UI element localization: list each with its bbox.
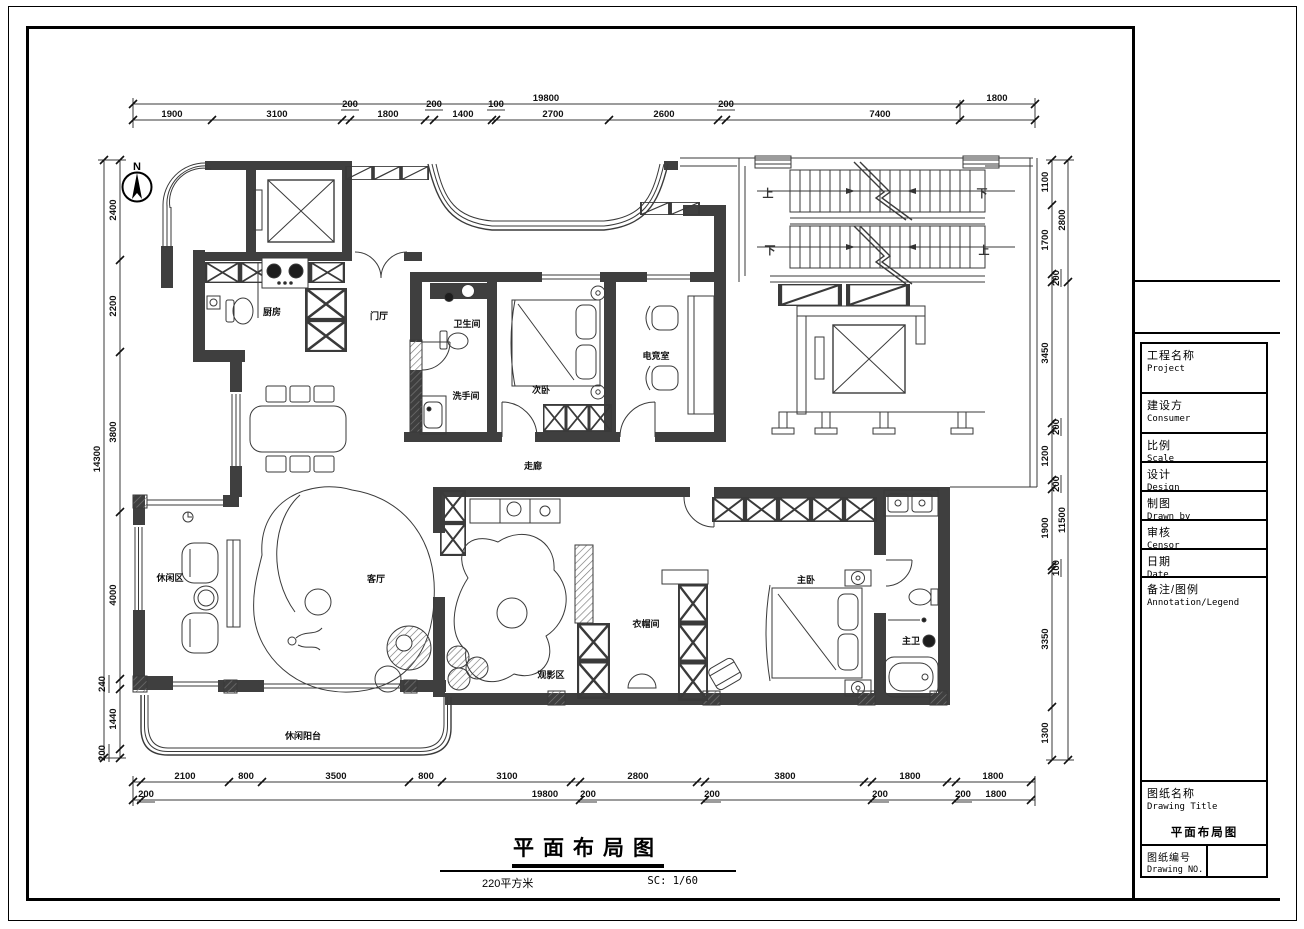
room-label-leisure: 休闲区 (155, 572, 183, 583)
north-label: N (133, 161, 141, 173)
tb-cell-drawing-no: 图纸编号 Drawing NO. (1140, 844, 1268, 878)
dim-label: 200 (1051, 476, 1062, 492)
dim-label: 1800 (986, 93, 1007, 104)
dim-label: 3800 (108, 421, 119, 442)
room-label-bath: 卫生间 (453, 318, 480, 329)
dim-label: 14300 (92, 446, 103, 472)
tb-label-zh: 备注/图例 (1147, 581, 1262, 597)
dimension-top: 19800 1800 1900 3100 200 1800 200 1400 1… (129, 93, 1039, 128)
dim-label: 1900 (161, 109, 182, 120)
tb-label-zh: 审核 (1147, 524, 1262, 540)
stair-label-down: 下 (977, 187, 988, 200)
dim-label: 100 (488, 99, 504, 110)
tb-label-zh: 日期 (1147, 553, 1262, 569)
dim-label: 800 (238, 771, 254, 782)
elevator-top-left (254, 180, 334, 242)
tb-label-en: Drawing NO. (1147, 865, 1204, 875)
title-underline-thick (512, 864, 664, 868)
dim-label: 1800 (377, 109, 398, 120)
tb-cell-scale: 比例 Scale (1140, 432, 1268, 463)
dim-label: 1440 (108, 708, 119, 729)
dim-label: 1200 (1040, 445, 1051, 466)
tb-label-zh: 图纸编号 (1147, 849, 1204, 864)
dim-label: 200 (138, 789, 154, 800)
dim-label: 4000 (108, 584, 119, 605)
staircase: 上 下 下 上 (755, 156, 1015, 305)
dim-label: 200 (718, 99, 734, 110)
title-block-divider (1135, 280, 1280, 282)
sheet-title: 平面布局图 (440, 832, 736, 862)
dim-label: 200 (1051, 270, 1062, 286)
tb-cell-censor: 审核 Censor (1140, 519, 1268, 550)
title-block: 工程名称 Project 建设方 Consumer 比例 Scale 设计 De… (1132, 26, 1280, 898)
dim-label: 200 (872, 789, 888, 800)
dim-label: 2400 (108, 199, 119, 220)
dim-label: 3350 (1040, 628, 1051, 649)
dim-label: 200 (97, 745, 108, 761)
dim-label: 1100 (1040, 172, 1051, 193)
sheet-area: 220平方米 (482, 875, 533, 891)
dim-label: 1800 (899, 771, 920, 782)
tb-cell-project: 工程名称 Project (1140, 342, 1268, 394)
drawing-no-labels: 图纸编号 Drawing NO. (1142, 846, 1208, 876)
sheet-footer: 平面布局图 220平方米 SC: 1/60 (440, 832, 736, 891)
dim-label: 3100 (496, 771, 517, 782)
dim-label: 11500 (1057, 507, 1068, 533)
stair-label-up: 上 (763, 186, 774, 200)
tb-cell-design: 设计 Design (1140, 461, 1268, 492)
dim-label: 240 (97, 676, 108, 692)
floor-plan-svg: 19800 1800 1900 3100 200 1800 200 1400 1… (0, 0, 1304, 929)
tb-label-zh: 设计 (1147, 466, 1262, 482)
dimension-bottom: 2100 800 3500 800 3100 2800 3800 1800 18… (129, 771, 1035, 806)
dim-label: 2800 (1057, 209, 1068, 230)
tb-label-zh: 比例 (1147, 437, 1262, 453)
dim-label: 200 (955, 789, 971, 800)
dim-label: 2200 (108, 295, 119, 316)
dim-label: 3500 (325, 771, 346, 782)
tb-cell-annotation: 备注/图例 Annotation/Legend (1140, 576, 1268, 782)
room-label-master-bath: 主卫 (902, 635, 920, 646)
dim-label: 7400 (869, 109, 890, 120)
drawing-no-value-cell (1208, 846, 1266, 876)
dim-label: 3100 (266, 109, 287, 120)
dim-label: 800 (418, 771, 434, 782)
dim-label: 200 (580, 789, 596, 800)
tb-label-en: Drawing Title (1147, 802, 1262, 812)
stair-label-up: 上 (979, 243, 990, 257)
tb-label-en: Project (1147, 364, 1262, 374)
dim-label: 2100 (174, 771, 195, 782)
tb-label-zh: 建设方 (1147, 397, 1262, 413)
sheet-scale: SC: 1/60 (647, 875, 698, 891)
dim-label: 19800 (532, 789, 558, 800)
room-label-esports: 电竞室 (642, 350, 669, 361)
tb-label-en: Consumer (1147, 414, 1262, 424)
room-label-bedroom2: 次卧 (532, 384, 550, 395)
dim-label: 200 (1051, 419, 1062, 435)
dim-label: 1700 (1040, 229, 1051, 250)
dim-label: 1800 (985, 789, 1006, 800)
tb-label-zh: 制图 (1147, 495, 1262, 511)
room-label-corridor: 走廊 (523, 460, 542, 471)
dim-label: 2700 (542, 109, 563, 120)
dim-label: 1300 (1040, 722, 1051, 743)
room-label-washroom: 洗手间 (452, 390, 479, 401)
tb-cell-drawing-title: 图纸名称 Drawing Title 平面布局图 (1140, 780, 1268, 846)
elevator-lobby (772, 306, 985, 434)
room-label-cinema: 观影区 (537, 670, 564, 680)
dim-label: 1900 (1040, 517, 1051, 538)
dim-label: 1800 (982, 771, 1003, 782)
title-block-cells: 工程名称 Project 建设方 Consumer 比例 Scale 设计 De… (1140, 344, 1268, 878)
room-label-foyer: 门厅 (370, 310, 388, 321)
dim-label: 3450 (1040, 342, 1051, 363)
dim-label: 200 (426, 99, 442, 110)
tb-label-zh: 图纸名称 (1147, 785, 1262, 801)
tb-label-en: Annotation/Legend (1147, 598, 1262, 608)
dim-label: 200 (704, 789, 720, 800)
dim-label: 1400 (452, 109, 473, 120)
room-label-living: 客厅 (366, 573, 385, 584)
north-compass: N (123, 161, 152, 202)
drawing-sheet: 19800 1800 1900 3100 200 1800 200 1400 1… (0, 0, 1304, 929)
dim-label: 2600 (653, 109, 674, 120)
dimension-left: 14300 2400 2200 3800 4000 240 1440 200 (92, 156, 126, 762)
dim-label: 19800 (533, 93, 559, 104)
tb-cell-drawn-by: 制图 Drawn by (1140, 490, 1268, 521)
drawing-title-value: 平面布局图 (1147, 824, 1262, 840)
tb-cell-consumer: 建设方 Consumer (1140, 392, 1268, 434)
room-label-balcony: 休闲阳台 (284, 730, 321, 741)
dim-label: 200 (342, 99, 358, 110)
tb-cell-date: 日期 Date (1140, 548, 1268, 578)
stair-label-down: 下 (765, 244, 776, 257)
dim-label: 3800 (774, 771, 795, 782)
room-label-kitchen: 厨房 (263, 306, 281, 317)
room-label-cloakroom: 衣帽间 (632, 618, 659, 629)
dim-label: 2800 (627, 771, 648, 782)
room-label-master: 主卧 (797, 574, 815, 585)
tb-label-zh: 工程名称 (1147, 347, 1262, 363)
title-block-divider (1135, 332, 1280, 334)
dim-label: 100 (1051, 560, 1062, 576)
dimension-right: 1100 1700 200 3450 200 1200 200 1900 100… (1040, 156, 1074, 764)
north-needle (132, 173, 142, 199)
furniture (182, 258, 938, 697)
door-arcs (355, 252, 912, 586)
